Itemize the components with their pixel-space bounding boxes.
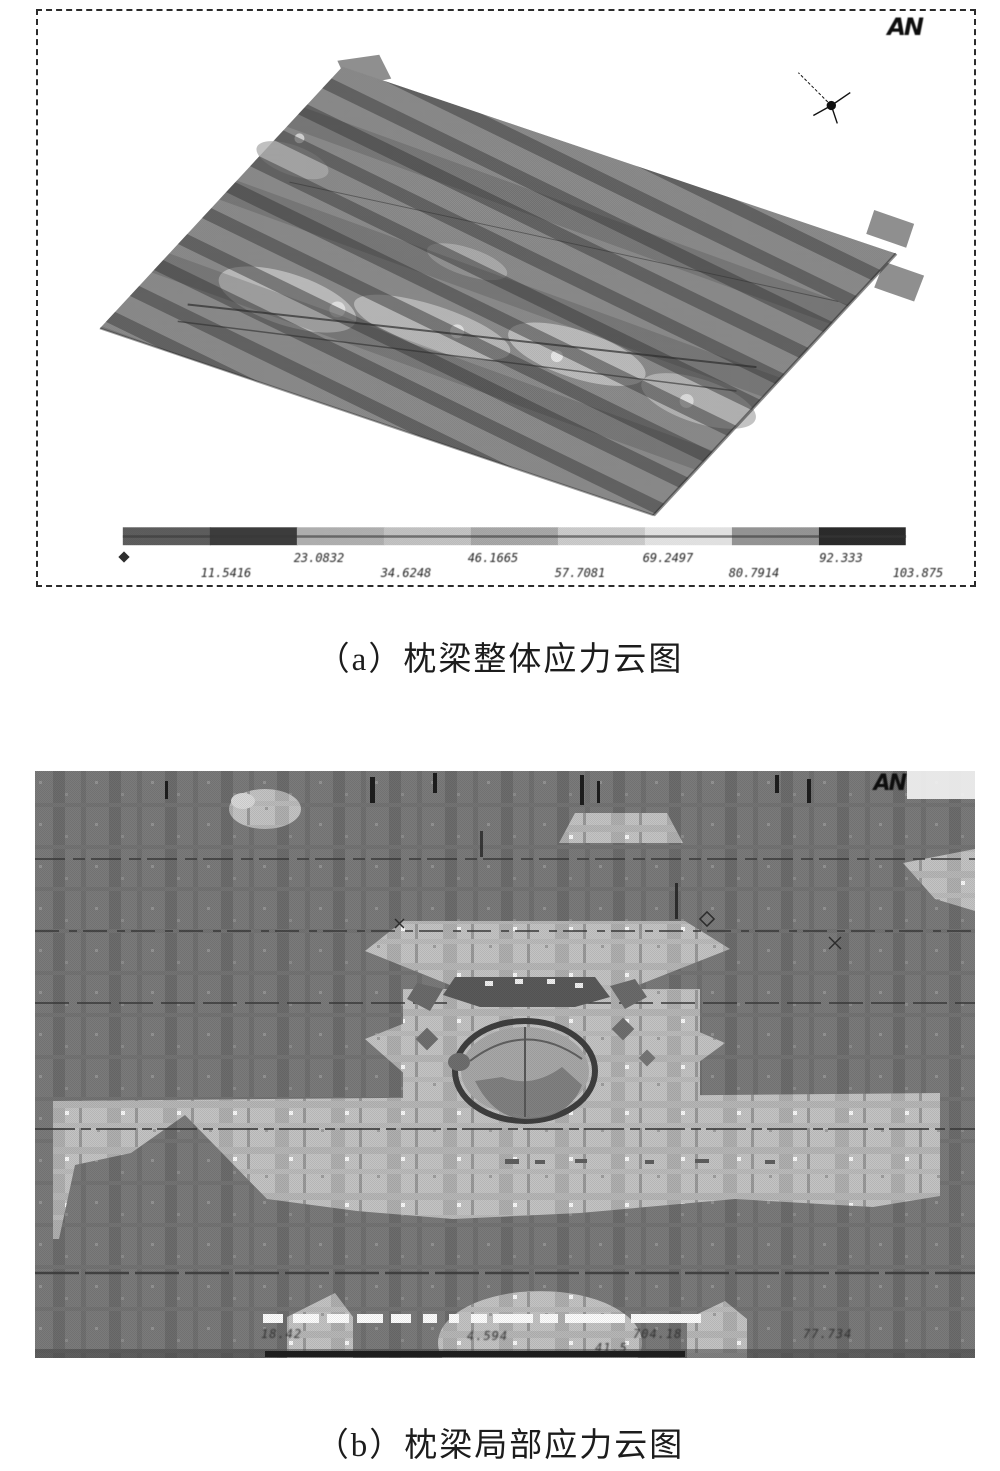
legend-label: 46.1665 — [468, 551, 519, 565]
dither-overlay — [35, 771, 975, 1358]
legend-label: 11.5416 — [201, 566, 252, 580]
stress-legend-bar — [123, 527, 906, 545]
legend-fragment: 704.18 — [633, 1327, 682, 1341]
logo-backdrop — [907, 771, 975, 799]
figure-a-caption: （a）枕梁整体应力云图 — [0, 632, 1000, 680]
legend-label: 34.6248 — [381, 566, 432, 580]
legend-label: 57.7081 — [555, 566, 606, 580]
figure-b-canvas — [35, 771, 975, 1358]
legend-label: 69.2497 — [643, 551, 694, 565]
axis-triad-icon — [798, 73, 850, 124]
ansys-logo: AN — [887, 13, 922, 41]
legend-fragment: 77.734 — [803, 1327, 852, 1341]
ansys-logo: AN — [874, 771, 905, 796]
figure-a-canvas — [38, 11, 974, 585]
legend-label: 103.875 — [893, 566, 944, 580]
scanned-paper-page: AN 11.5416 23.0832 34.6248 46.1665 57.70… — [0, 0, 1000, 1471]
figure-b-local-stress-plot: AN 18.42 4.594 41.5 704.18 77.734 — [35, 771, 975, 1358]
legend-fragment: 18.42 — [261, 1327, 302, 1341]
legend-label: 80.7914 — [729, 566, 780, 580]
legend-label: 23.0832 — [294, 551, 345, 565]
figure-a-overall-stress-plot: AN 11.5416 23.0832 34.6248 46.1665 57.70… — [36, 9, 976, 587]
plate-3d-view — [100, 55, 924, 516]
figure-b-caption: （b）枕梁局部应力云图 — [0, 1418, 1000, 1466]
legend-label: 92.333 — [819, 551, 862, 565]
legend-fragment: 4.594 — [467, 1329, 508, 1343]
legend-fragment: 41.5 — [595, 1341, 628, 1355]
